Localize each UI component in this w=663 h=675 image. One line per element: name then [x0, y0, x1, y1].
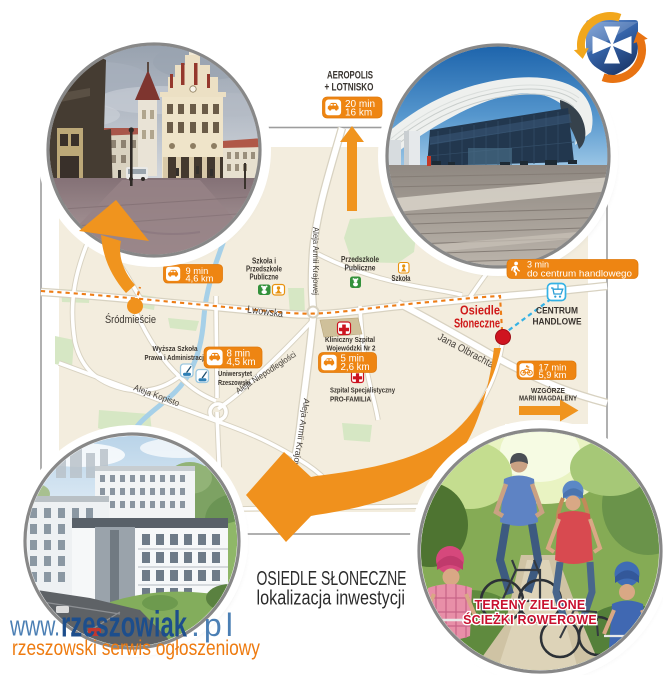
svg-text:CENTRUM: CENTRUM — [536, 306, 578, 317]
svg-text:MARII MAGDALENY: MARII MAGDALENY — [519, 394, 577, 403]
svg-text:Wojewódzki Nr 2: Wojewódzki Nr 2 — [327, 344, 376, 353]
svg-text:+ LOTNISKO: + LOTNISKO — [325, 82, 374, 94]
svg-text:2,6 km: 2,6 km — [341, 362, 370, 373]
svg-text:16 km: 16 km — [345, 108, 372, 119]
svg-text:Publiczne: Publiczne — [250, 273, 280, 282]
svg-text:TERENY ZIELONE: TERENY ZIELONE — [475, 598, 586, 612]
svg-text:AEROPOLIS: AEROPOLIS — [327, 70, 373, 82]
svg-text:do centrum handlowego: do centrum handlowego — [527, 269, 632, 279]
svg-text:Osiedle: Osiedle — [460, 304, 500, 318]
svg-text:ŚCIEŻKI ROWEROWE: ŚCIEŻKI ROWEROWE — [463, 612, 597, 627]
svg-text:5,9 km: 5,9 km — [539, 370, 567, 380]
svg-text:Śródmieście: Śródmieście — [105, 313, 156, 326]
svg-text:Szkoła: Szkoła — [392, 274, 412, 283]
svg-text:Wyższa Szkoła: Wyższa Szkoła — [153, 344, 199, 353]
svg-text:lokalizacja inwestycji: lokalizacja inwestycji — [257, 587, 406, 610]
svg-text:Publiczne: Publiczne — [345, 264, 377, 273]
svg-text:4,6 km: 4,6 km — [186, 274, 214, 284]
svg-text:Aleja Armii Krajowej: Aleja Armii Krajowej — [311, 227, 321, 295]
svg-text:rzeszowski serwis ogłoszeniowy: rzeszowski serwis ogłoszeniowy — [12, 637, 260, 660]
svg-text:HANDLOWE: HANDLOWE — [533, 317, 582, 328]
svg-text:PRO-FAMILIA: PRO-FAMILIA — [330, 395, 371, 404]
svg-text:4,5 km: 4,5 km — [227, 357, 256, 368]
svg-text:Uniwersytet: Uniwersytet — [218, 369, 252, 378]
svg-text:Szpital Specjalistyczny: Szpital Specjalistyczny — [330, 386, 396, 395]
svg-text:Prawa i Administracji: Prawa i Administracji — [145, 353, 206, 362]
svg-text:Słoneczne: Słoneczne — [454, 317, 500, 331]
svg-text:Rzeszowski: Rzeszowski — [218, 378, 250, 387]
